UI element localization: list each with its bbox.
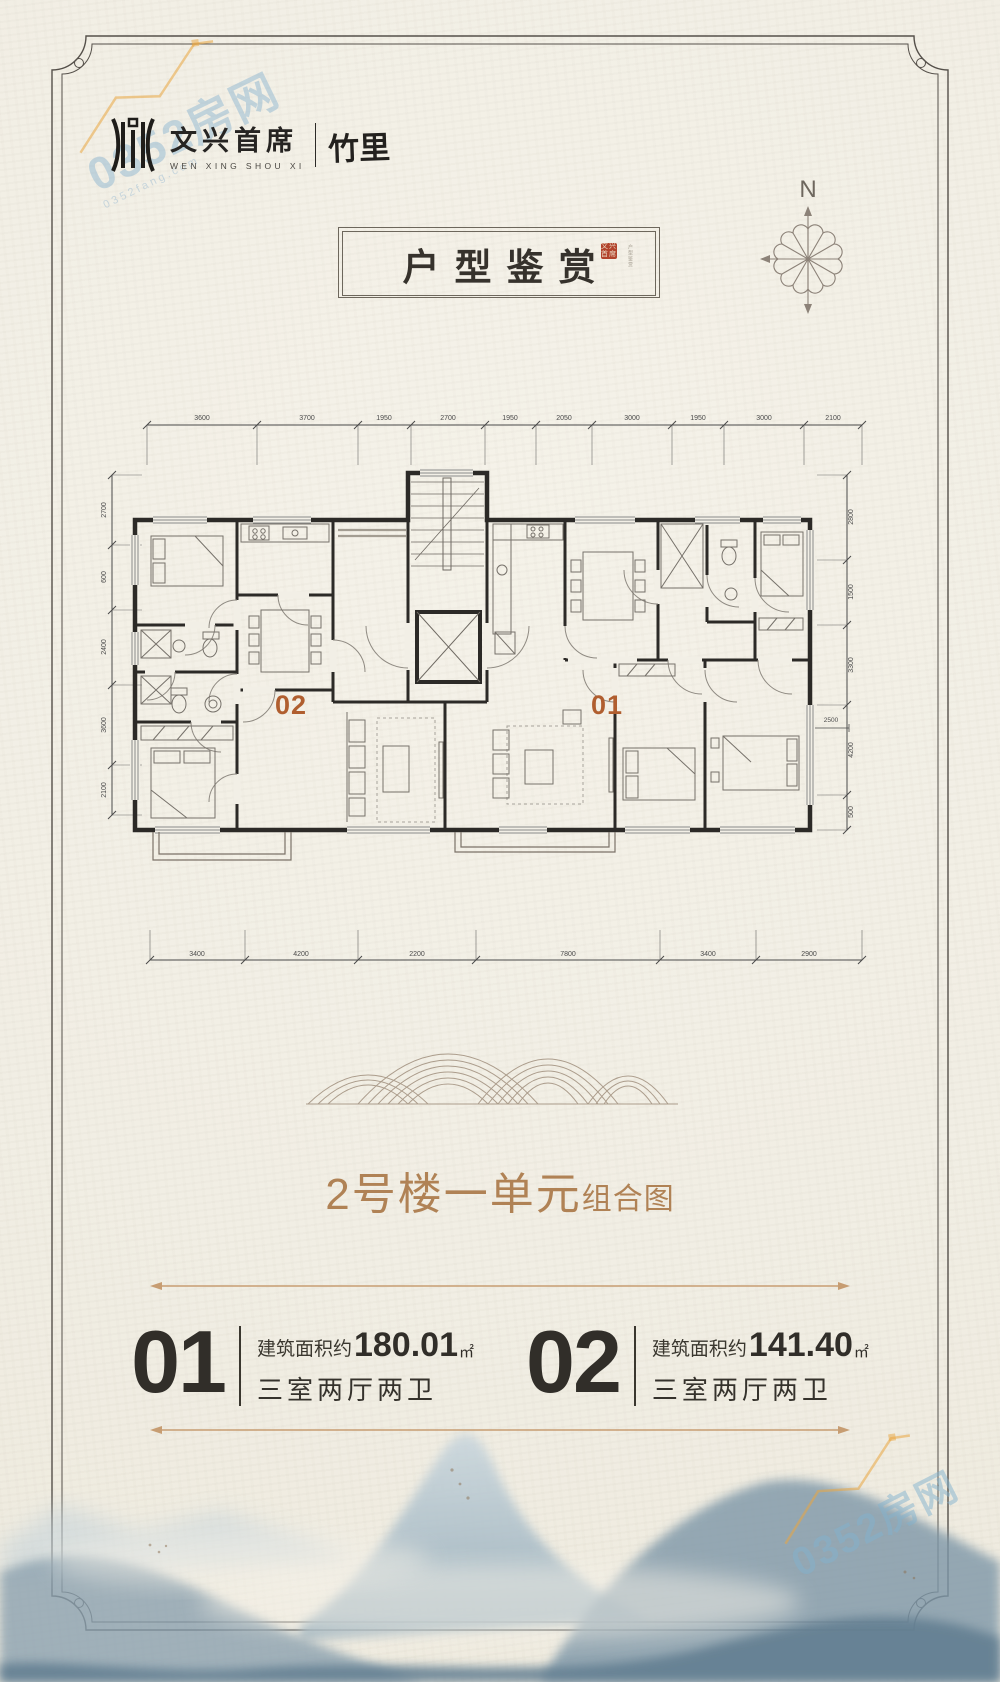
dim-label: 2200 (409, 951, 425, 958)
unit-info-row: 01 建筑面积约 180.01 ㎡ 三室两厅两卫 02 建筑面积约 141.40… (0, 1322, 1000, 1407)
compass: N (760, 176, 856, 314)
dim-label: 3700 (299, 415, 315, 422)
brand-name-cn: 文兴首席 (170, 119, 305, 158)
caption-main: 2号楼一单元 (325, 1170, 581, 1219)
area-unit: ㎡ (459, 1345, 474, 1362)
unit-number: 02 (526, 1322, 620, 1403)
dim-label: 1950 (376, 415, 392, 422)
dim-label: 2400 (101, 639, 108, 655)
dim-label: 3300 (848, 657, 855, 673)
divider-line-top (150, 1280, 850, 1292)
dim-label: 2100 (101, 782, 108, 798)
divider-line-bottom (150, 1424, 850, 1436)
compass-north-label: N (760, 176, 856, 204)
area-prefix: 建筑面积约 (652, 1340, 747, 1362)
project-name: 竹里 (327, 121, 391, 168)
dim-label: 4200 (848, 742, 855, 758)
brand-name-en: WEN XING SHOU XI (170, 161, 305, 171)
dim-label: 7800 (560, 951, 576, 958)
unit02-info: 02 建筑面积约 141.40 ㎡ 三室两厅两卫 (526, 1322, 869, 1407)
dim-label: 2100 (825, 415, 841, 422)
section-title: 户型鉴赏 (388, 237, 611, 291)
unit01-label: 01 (591, 690, 623, 720)
dim-label: 3400 (700, 951, 716, 958)
dim-label: 4200 (293, 951, 309, 958)
dim-label: 2700 (440, 415, 456, 422)
unit02-label: 02 (275, 690, 307, 720)
dim-label: 2800 (848, 509, 855, 525)
unit-info-divider (239, 1326, 241, 1406)
dim-label: 3400 (189, 951, 205, 958)
seal-side-text: 户型鉴赏 (627, 244, 633, 268)
mountain-line-art (298, 986, 688, 1126)
room-layout: 三室两厅两卫 (257, 1370, 474, 1407)
plan-caption: 2号楼一单元组合图 (0, 1158, 1000, 1222)
caption-sub: 组合图 (582, 1183, 675, 1216)
section-title-plaque: 户型鉴赏 文兴首席 户型鉴赏 (338, 227, 660, 298)
entry-canopy (338, 530, 406, 536)
stair-core (411, 478, 484, 682)
unit01-info: 01 建筑面积约 180.01 ㎡ 三室两厅两卫 (131, 1322, 474, 1407)
floor-plan: 3600 3700 1950 2700 1950 2050 3000 1950 … (95, 370, 905, 980)
logo-divider (315, 123, 317, 167)
brand-logo-icon (108, 116, 158, 174)
dim-label: 3600 (194, 415, 210, 422)
area-prefix: 建筑面积约 (257, 1340, 352, 1362)
balconies (153, 832, 615, 860)
dim-label: 3000 (624, 415, 640, 422)
dim-label: 2050 (556, 415, 572, 422)
area-value: 141.40 (749, 1328, 853, 1362)
brand-logo: 文兴首席 WEN XING SHOU XI 竹里 (108, 116, 390, 174)
room-layout: 三室两厅两卫 (652, 1370, 869, 1407)
area-value: 180.01 (354, 1328, 458, 1362)
dim-label: 3600 (101, 717, 108, 733)
dim-label: 500 (848, 806, 855, 818)
red-seal: 文兴首席 (601, 243, 617, 259)
unit-number: 01 (131, 1322, 225, 1403)
dim-label: 2500 (824, 717, 839, 724)
windows (130, 468, 815, 835)
dim-label: 600 (101, 571, 108, 583)
compass-rose-icon (760, 204, 856, 314)
dim-label: 1950 (502, 415, 518, 422)
dim-label: 3000 (756, 415, 772, 422)
unit-info-divider (634, 1326, 636, 1406)
dim-label: 1500 (848, 584, 855, 600)
dim-label: 2700 (101, 502, 108, 518)
area-unit: ㎡ (854, 1345, 869, 1362)
dim-label: 2900 (801, 951, 817, 958)
dim-label: 1950 (690, 415, 706, 422)
